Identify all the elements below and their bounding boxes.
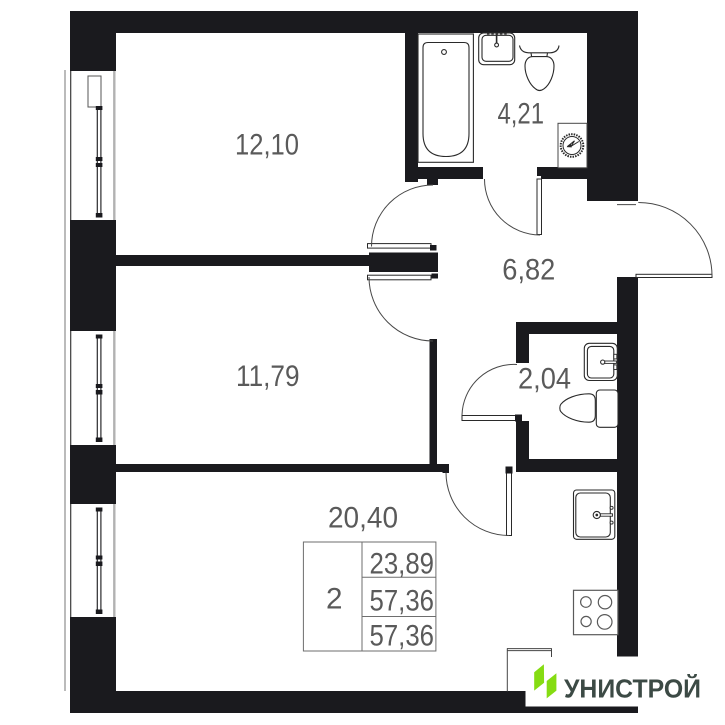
svg-text:11,79: 11,79 [236, 360, 300, 393]
svg-text:20,40: 20,40 [328, 502, 398, 535]
svg-text:57,36: 57,36 [370, 585, 435, 618]
svg-text:6,82: 6,82 [502, 254, 555, 287]
svg-text:4,21: 4,21 [498, 98, 545, 131]
svg-text:2: 2 [326, 583, 343, 616]
svg-text:2,04: 2,04 [518, 363, 571, 396]
svg-text:УНИСТРОЙ: УНИСТРОЙ [564, 674, 701, 704]
svg-text:12,10: 12,10 [235, 129, 299, 162]
svg-text:23,89: 23,89 [370, 548, 435, 581]
svg-text:57,36: 57,36 [370, 620, 435, 653]
